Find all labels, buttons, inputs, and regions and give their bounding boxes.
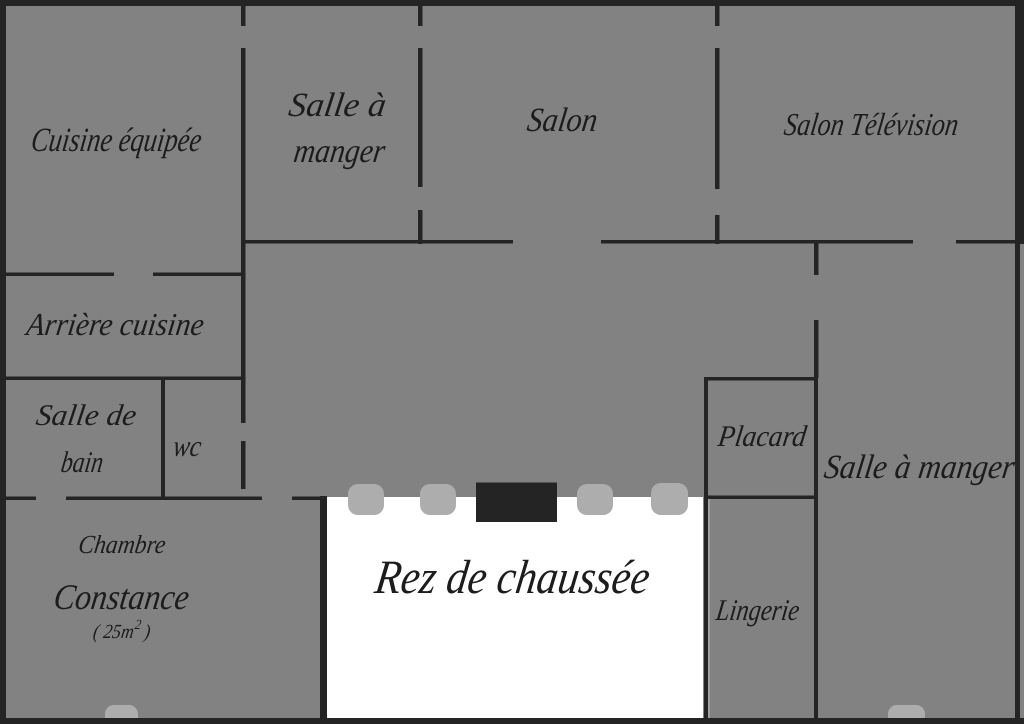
svg-text:Salon: Salon: [525, 102, 600, 139]
svg-text:Cuisine équipée: Cuisine équipée: [29, 122, 204, 159]
svg-text:( 25m2 ): ( 25m2 ): [92, 617, 153, 643]
svg-text:Salle à: Salle à: [286, 87, 388, 124]
svg-text:Salle de: Salle de: [34, 398, 139, 432]
svg-text:Lingerie: Lingerie: [713, 593, 802, 627]
svg-text:Salon Télévision: Salon Télévision: [782, 106, 961, 142]
svg-text:wc: wc: [171, 429, 204, 463]
svg-text:Constance: Constance: [51, 577, 192, 617]
svg-text:Arrière cuisine: Arrière cuisine: [23, 306, 207, 342]
svg-text:Salle à manger: Salle à manger: [822, 449, 1018, 486]
svg-text:Chambre: Chambre: [77, 530, 168, 559]
svg-text:bain: bain: [59, 445, 106, 479]
svg-text:Rez de chaussée: Rez de chaussée: [371, 551, 653, 604]
svg-text:Placard: Placard: [715, 419, 810, 453]
svg-text:manger: manger: [291, 133, 388, 170]
